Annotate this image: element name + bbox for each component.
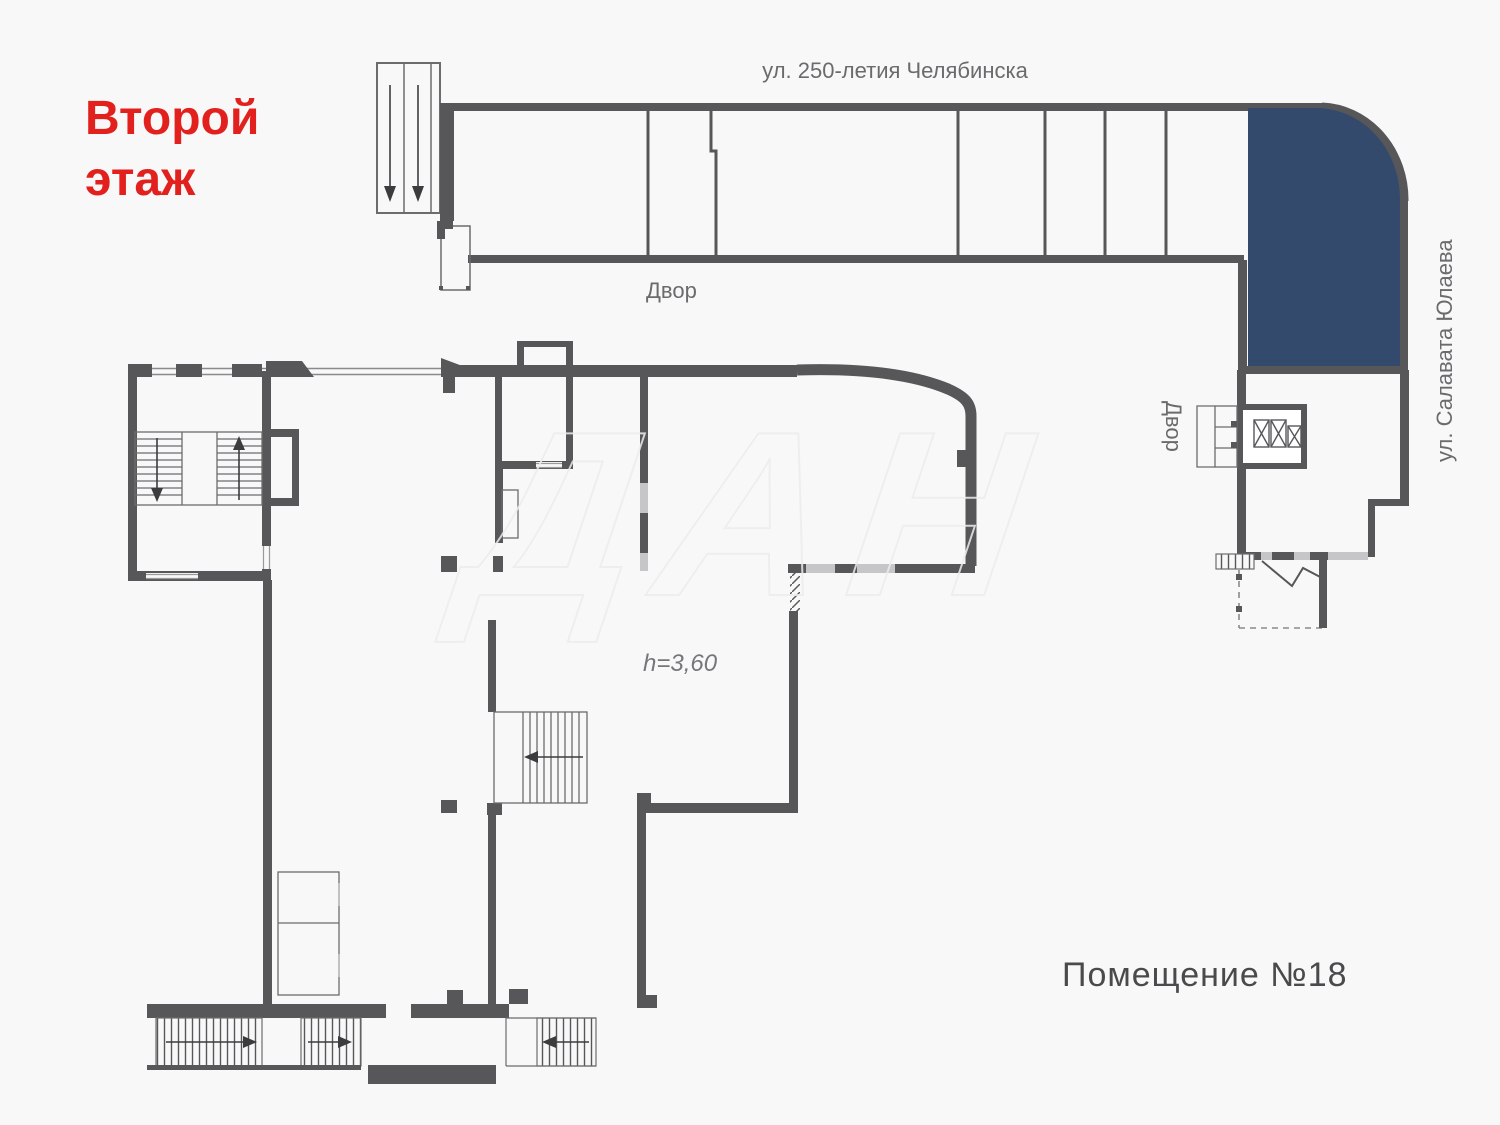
storerooms — [278, 872, 341, 995]
exterior-ramp — [377, 63, 440, 213]
highlight-bottom-wall — [1243, 366, 1407, 374]
open-door-symbol — [1262, 561, 1324, 586]
strip-bottom-wall — [468, 255, 1244, 263]
right-wing — [1197, 370, 1409, 628]
interior-stair — [494, 712, 587, 803]
wing-bottom-wall — [1243, 552, 1368, 586]
ceiling-height-note: h=3,60 — [643, 650, 717, 678]
street-label-top: ул. 250-летия Челябинска — [740, 58, 1050, 84]
premises-label: Помещение №18 — [1062, 956, 1348, 995]
strip-top-wall — [440, 103, 1325, 111]
stairwell-annex — [270, 429, 299, 506]
wing-right-wall — [1400, 370, 1409, 504]
highlighted-premises-18 — [1248, 108, 1400, 366]
roof-hatch — [517, 341, 573, 367]
elevator-room — [1197, 406, 1304, 467]
yard-label-top: Двор — [646, 278, 697, 304]
wall-stubs-column — [441, 377, 463, 1006]
yard-label-right: Двор — [1160, 401, 1186, 452]
floor-title: Второй этаж — [85, 88, 259, 211]
street-label-right: ул. Салавата Юлаева — [1432, 239, 1458, 462]
strip-annex — [437, 221, 470, 290]
floorplan-page: ДАН Второй этаж ул. 250-летия Челябинска… — [0, 0, 1500, 1125]
strip-left-wall — [440, 103, 454, 221]
shaft-cells — [1197, 406, 1237, 467]
strip-right-wall — [1399, 197, 1408, 373]
wing-left-upper-wall — [1238, 260, 1247, 370]
south-wall-and-exits — [147, 989, 596, 1084]
main-top-wall — [452, 365, 797, 377]
exterior-steps — [1216, 554, 1254, 569]
strip-partitions — [648, 111, 1166, 255]
hall-west-wall — [263, 580, 272, 1007]
stairwell-northwest — [128, 358, 492, 581]
street-strip-building — [377, 63, 1408, 374]
agency-watermark: ДАН — [451, 378, 1064, 649]
